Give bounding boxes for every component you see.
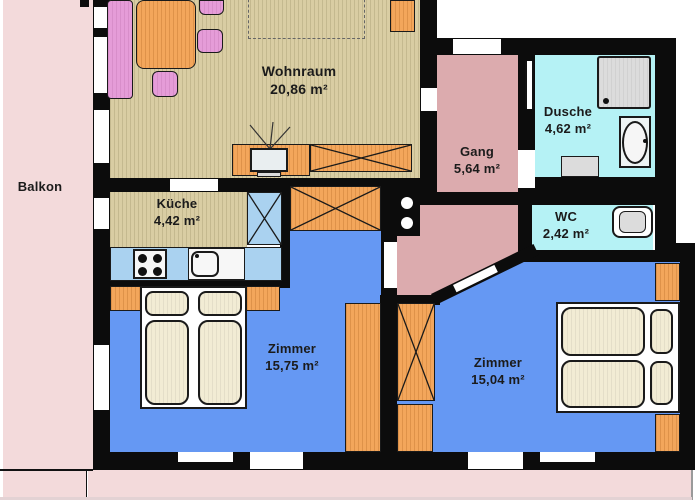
window [178,452,233,462]
wardrobe [345,303,381,452]
bedroom-left-floor-ext [288,231,383,288]
pillow [650,309,673,354]
room-label-bedroom-left: Zimmer 15,75 m² [250,341,334,375]
stove-icon [133,249,167,279]
room-area: 20,86 m² [234,80,364,98]
mattress [198,320,242,405]
room-area: 15,04 m² [456,372,540,389]
floor-plan: Balkon Wohnraum 20,86 m² Küche 4,42 m² G… [0,0,700,500]
room-label-hall: Gang 5,64 m² [436,144,518,178]
opening-living-kitchen [170,179,218,191]
window [540,452,595,462]
mattress [561,307,645,356]
washer-icon [561,156,599,177]
mattress [145,320,189,405]
pillow [198,291,242,316]
room-area: 4,62 m² [526,121,610,138]
faucet-icon [643,139,647,143]
room-name: WC [524,209,608,226]
tv-icon [250,148,288,172]
cabinet [397,404,433,452]
radiator-icon [525,61,534,109]
burner-icon [153,254,162,263]
room-name: Küche [135,196,219,213]
room-name: Balkon [5,179,75,196]
fridge-unit [247,192,282,245]
nightstand [655,263,680,301]
shaft-pipe-icon [401,197,413,209]
room-area: 5,64 m² [436,161,518,178]
room-label-shower: Dusche 4,62 m² [526,104,610,138]
window [94,198,109,229]
burner-icon [153,267,162,276]
chair [197,29,223,53]
room-name: Zimmer [456,355,540,372]
pillow [145,291,189,316]
room-area: 4,42 m² [135,213,219,230]
terrace-bottom-strip [88,470,692,500]
balcony-door [250,452,303,469]
room-name: Wohnraum [234,62,364,80]
wardrobe [290,186,381,231]
wardrobe [310,144,412,172]
terrace-door [468,452,523,469]
wall-hall-bar [437,192,518,205]
room-label-balcony: Balkon [5,179,75,196]
tv-antenna-icon [246,122,294,150]
faucet-icon [195,254,199,258]
window [94,110,109,163]
door-living-hall [421,88,437,111]
burner-icon [138,267,147,276]
room-label-living: Wohnraum 20,86 m² [234,62,364,98]
chair [152,71,178,97]
terrace-lower-left [3,470,87,500]
wall-top-left-stub [80,0,89,7]
mattress [561,360,645,408]
dining-table [136,0,196,69]
door-bedroom-left [384,242,397,288]
burner-icon [138,254,147,263]
shaft-pipe-icon [401,217,413,229]
window [94,345,109,410]
tv-stand [257,172,281,177]
room-area: 15,75 m² [250,358,334,375]
balcony-divider-line [0,469,93,471]
terrace-edge-line [691,470,693,500]
roof-outline-dashed [248,0,365,39]
room-label-wc: WC 2,42 m² [524,209,608,243]
cabinet [390,0,415,32]
wardrobe [397,303,435,401]
wall-bath-right [655,38,676,245]
room-label-bedroom-right: Zimmer 15,04 m² [456,355,540,389]
pillow [650,361,673,405]
wall-shower-bottom [518,177,676,205]
wall-bedroom-divider [381,192,397,452]
toilet-seat-icon [619,211,646,233]
wall-right-lower [680,245,695,470]
room-name: Dusche [526,104,610,121]
hallway-floor-left [397,236,420,296]
room-name: Zimmer [250,341,334,358]
room-area: 2,42 m² [524,226,608,243]
nightstand [655,414,680,452]
room-name: Gang [436,144,518,161]
door-shower-room [518,150,535,188]
room-label-kitchen: Küche 4,42 m² [135,196,219,230]
sofa [107,0,133,99]
entrance-door [453,39,501,54]
chair [199,0,224,15]
balcony-area [3,0,93,470]
